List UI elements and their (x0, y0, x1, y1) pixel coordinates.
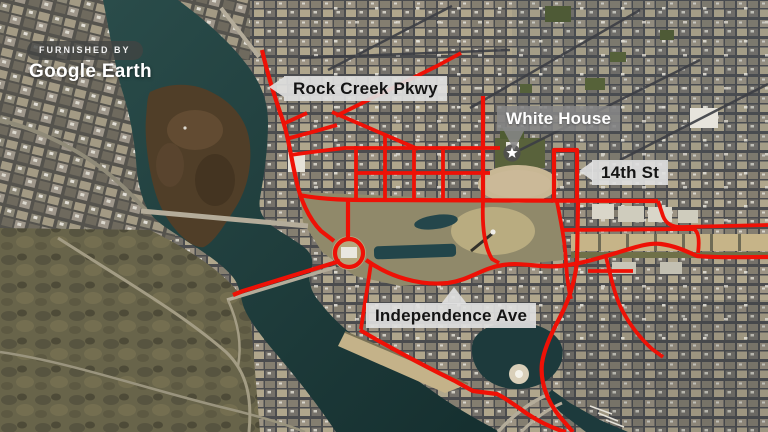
rock-creek-pkwy-pointer (269, 77, 284, 97)
map-label-rock-creek-pkwy: Rock Creek Pkwy (284, 76, 447, 101)
independence-ave-pointer (441, 287, 467, 304)
google-earth-logo: Google Earth (29, 61, 152, 83)
map-label-independence-ave: Independence Ave (366, 303, 536, 328)
white-house-pointer (502, 127, 526, 150)
map-label-14th-st: 14th St (592, 160, 668, 185)
fourteenth-st-pointer (579, 161, 593, 181)
furnished-by-badge: FURNISHED BY (27, 41, 143, 60)
news-map-graphic: FURNISHED BY Google Earth Rock Creek Pkw… (0, 0, 768, 432)
